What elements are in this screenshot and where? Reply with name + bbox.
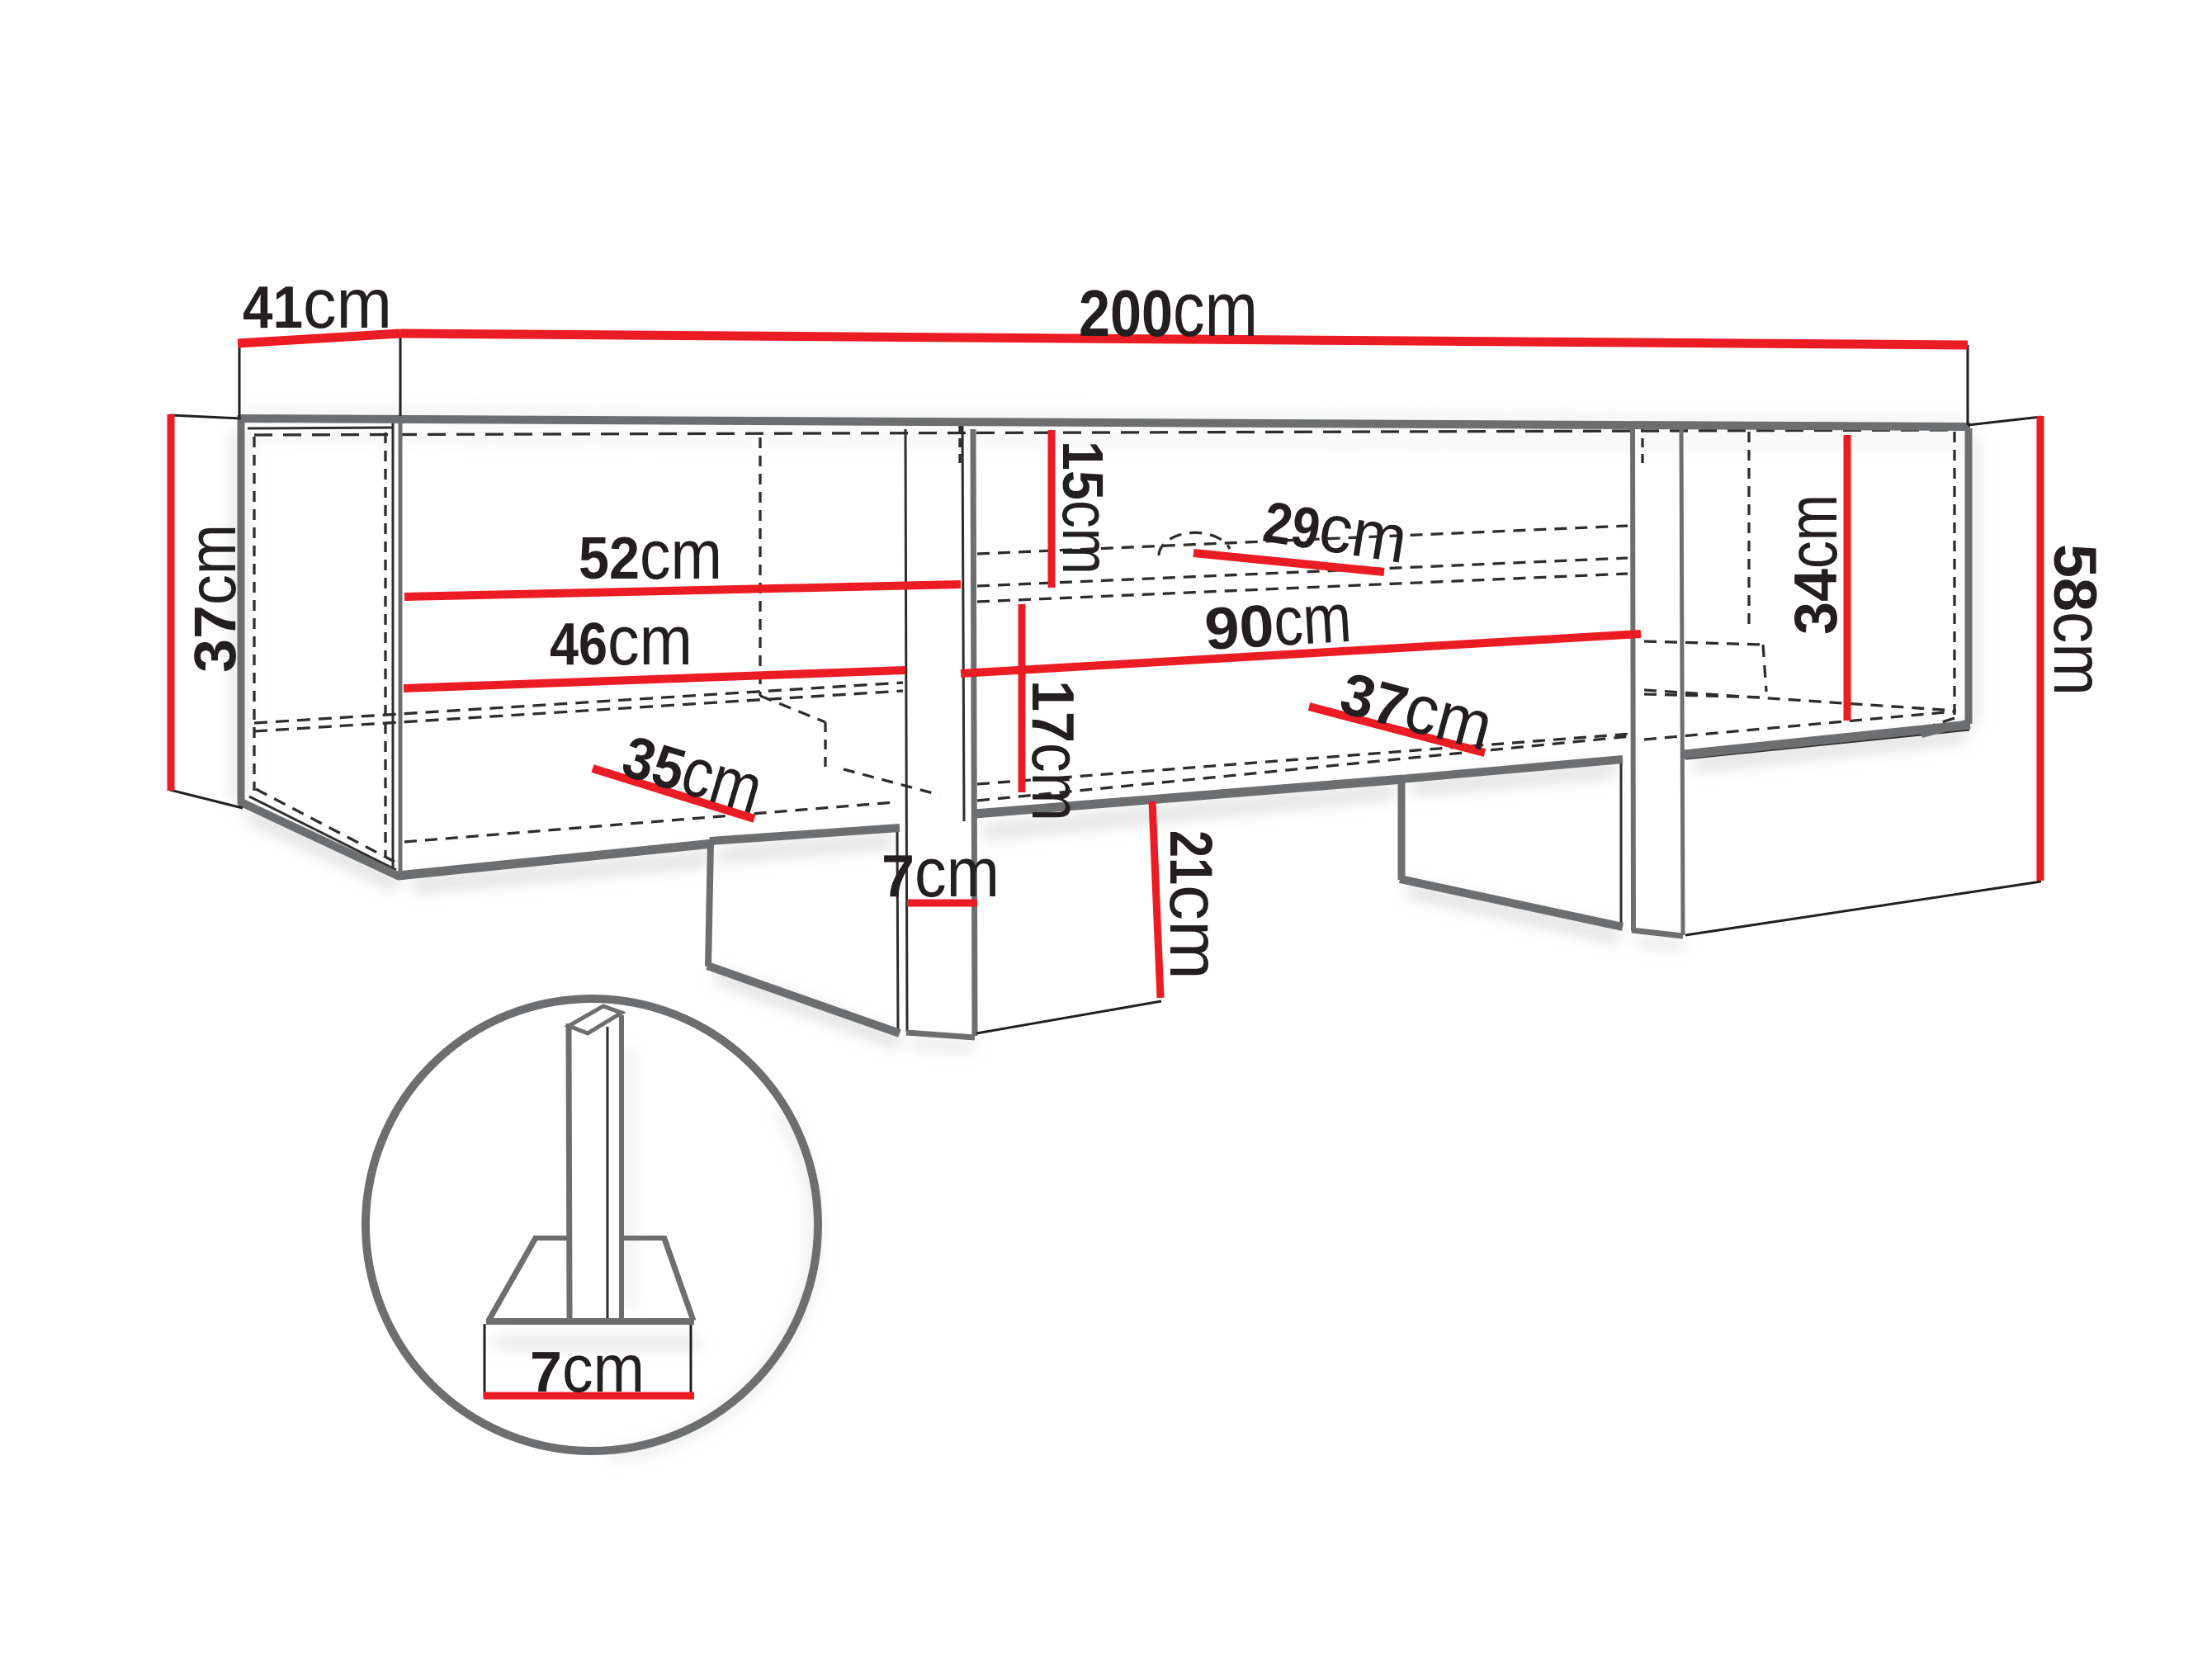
svg-text:37cm: 37cm: [173, 524, 250, 673]
svg-text:52cm: 52cm: [579, 516, 722, 593]
svg-text:7cm: 7cm: [530, 1331, 645, 1406]
svg-text:46cm: 46cm: [550, 602, 692, 679]
svg-text:37cm: 37cm: [1333, 651, 1501, 766]
svg-text:34cm: 34cm: [1774, 494, 1852, 635]
svg-text:200cm: 200cm: [1079, 266, 1258, 352]
svg-text:15cm: 15cm: [1048, 441, 1123, 574]
svg-text:41cm: 41cm: [243, 265, 392, 343]
svg-text:17cm: 17cm: [1018, 680, 1095, 821]
svg-text:7cm: 7cm: [881, 834, 1000, 911]
svg-text:35cm: 35cm: [615, 714, 772, 828]
svg-text:21cm: 21cm: [1155, 830, 1233, 980]
svg-text:58cm: 58cm: [2039, 544, 2117, 696]
